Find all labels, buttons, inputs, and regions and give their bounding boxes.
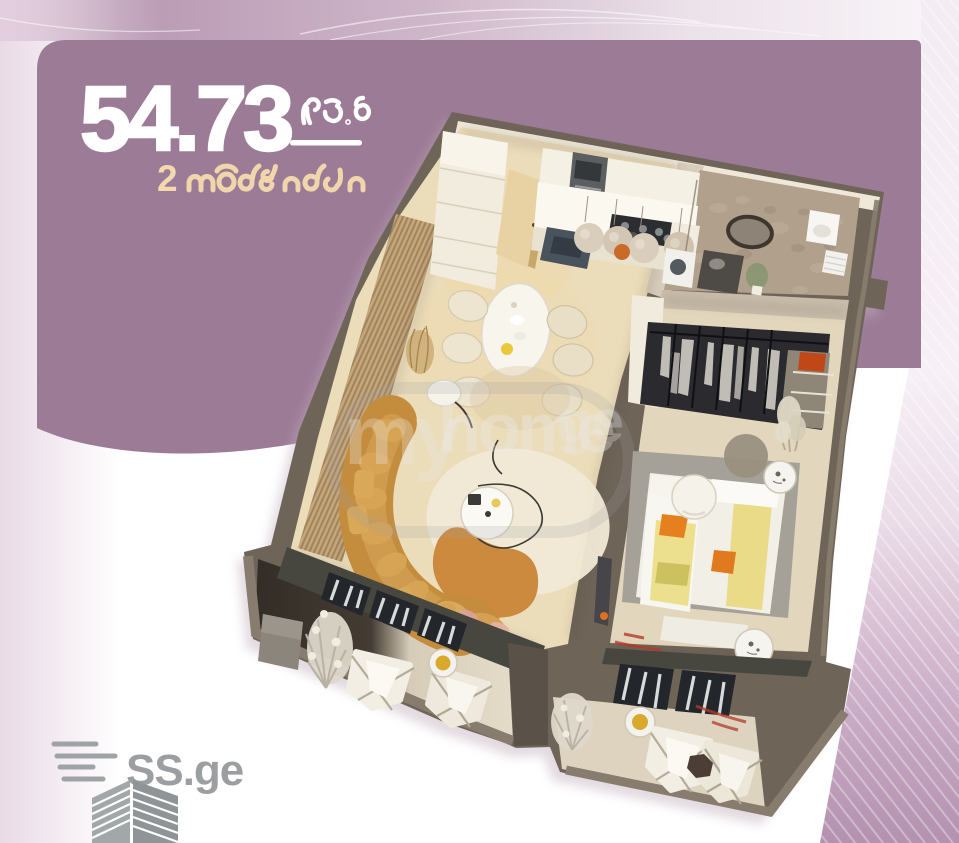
svg-text:2: 2	[157, 158, 178, 199]
svg-text:54.73: 54.73	[80, 68, 291, 170]
svg-text:ge: ge	[556, 388, 623, 455]
